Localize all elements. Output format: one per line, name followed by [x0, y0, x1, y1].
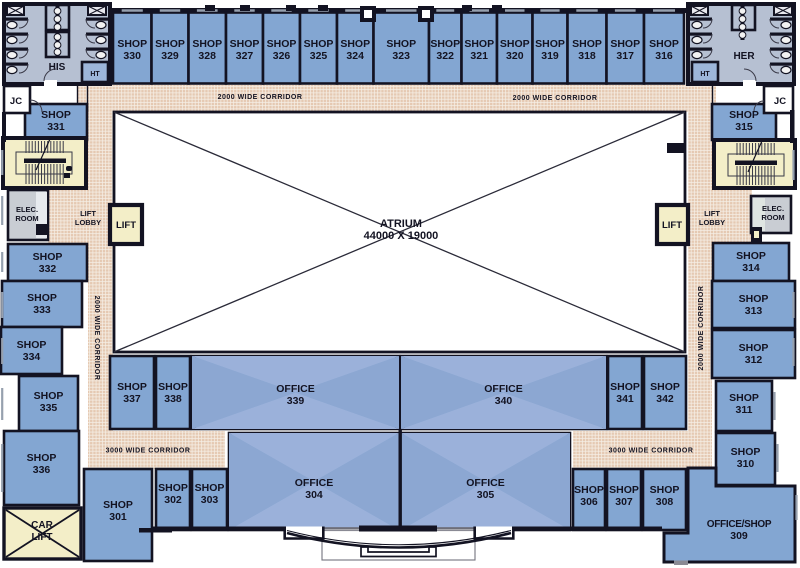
svg-text:SHOP: SHOP	[158, 482, 188, 494]
svg-text:OFFICE: OFFICE	[276, 383, 315, 395]
svg-text:320: 320	[506, 50, 524, 62]
svg-text:336: 336	[33, 464, 51, 476]
svg-text:311: 311	[736, 404, 753, 416]
svg-text:313: 313	[745, 305, 763, 317]
svg-text:LOBBY: LOBBY	[75, 218, 101, 227]
svg-text:326: 326	[273, 50, 291, 62]
svg-text:309: 309	[730, 530, 748, 542]
svg-text:SHOP: SHOP	[192, 38, 222, 50]
svg-text:337: 337	[123, 393, 141, 405]
svg-text:SHOP: SHOP	[340, 38, 370, 50]
svg-text:342: 342	[656, 393, 674, 405]
svg-text:SHOP: SHOP	[535, 38, 565, 50]
svg-text:SHOP: SHOP	[17, 339, 47, 351]
svg-text:ELEC.: ELEC.	[16, 205, 38, 214]
svg-text:330: 330	[123, 50, 141, 62]
svg-text:HER: HER	[733, 51, 755, 62]
svg-text:335: 335	[40, 402, 58, 414]
svg-text:324: 324	[346, 50, 364, 62]
svg-text:SHOP: SHOP	[27, 292, 57, 304]
svg-text:SHOP: SHOP	[34, 390, 64, 402]
svg-text:3000 WIDE CORRIDOR: 3000 WIDE CORRIDOR	[609, 448, 694, 455]
svg-text:LIFT: LIFT	[116, 220, 136, 231]
svg-text:LIFT: LIFT	[80, 209, 96, 218]
svg-text:SHOP: SHOP	[464, 38, 494, 50]
svg-text:307: 307	[615, 496, 633, 508]
svg-text:303: 303	[201, 494, 219, 506]
svg-text:OFFICE/SHOP: OFFICE/SHOP	[707, 519, 772, 530]
svg-text:301: 301	[109, 511, 127, 523]
svg-text:SHOP: SHOP	[739, 342, 769, 354]
svg-text:340: 340	[495, 395, 513, 407]
svg-text:SHOP: SHOP	[195, 482, 225, 494]
svg-text:SHOP: SHOP	[739, 293, 769, 305]
svg-text:SHOP: SHOP	[500, 38, 530, 50]
svg-text:LIFT: LIFT	[704, 209, 720, 218]
svg-text:328: 328	[198, 50, 216, 62]
svg-text:SHOP: SHOP	[117, 38, 147, 50]
svg-text:3000 WIDE CORRIDOR: 3000 WIDE CORRIDOR	[106, 448, 191, 455]
svg-text:2000 WIDE CORRIDOR: 2000 WIDE CORRIDOR	[698, 286, 705, 371]
svg-text:JC: JC	[10, 96, 22, 107]
svg-text:302: 302	[164, 494, 182, 506]
svg-text:327: 327	[236, 50, 254, 62]
svg-text:333: 333	[33, 304, 51, 316]
svg-text:CAR: CAR	[31, 520, 53, 531]
svg-text:SHOP: SHOP	[610, 381, 640, 393]
svg-text:HT: HT	[700, 71, 710, 78]
svg-text:HT: HT	[90, 71, 100, 78]
svg-text:SHOP: SHOP	[117, 381, 147, 393]
svg-text:2000 WIDE CORRIDOR: 2000 WIDE CORRIDOR	[513, 95, 598, 102]
svg-text:318: 318	[578, 50, 596, 62]
svg-text:SHOP: SHOP	[729, 392, 759, 404]
svg-text:ROOM: ROOM	[15, 214, 38, 223]
svg-text:317: 317	[616, 50, 634, 62]
svg-text:321: 321	[470, 50, 488, 62]
svg-text:329: 329	[161, 50, 179, 62]
svg-text:2000 WIDE CORRIDOR: 2000 WIDE CORRIDOR	[218, 94, 303, 101]
svg-text:SHOP: SHOP	[386, 38, 416, 50]
svg-text:HIS: HIS	[49, 62, 66, 73]
svg-text:316: 316	[655, 50, 673, 62]
svg-text:ELEC.: ELEC.	[762, 204, 784, 213]
svg-text:305: 305	[477, 489, 495, 501]
svg-text:44000 X 19000: 44000 X 19000	[364, 230, 439, 242]
svg-text:SHOP: SHOP	[230, 38, 260, 50]
svg-text:LIFT: LIFT	[662, 220, 682, 231]
svg-text:325: 325	[310, 50, 328, 62]
svg-text:SHOP: SHOP	[574, 484, 604, 496]
svg-text:SHOP: SHOP	[158, 381, 188, 393]
svg-text:310: 310	[737, 458, 755, 470]
svg-text:338: 338	[164, 393, 182, 405]
svg-text:334: 334	[23, 351, 41, 363]
svg-text:LIFT: LIFT	[31, 532, 52, 543]
svg-text:SHOP: SHOP	[304, 38, 334, 50]
svg-text:ROOM: ROOM	[761, 213, 784, 222]
svg-text:304: 304	[305, 489, 323, 501]
svg-text:2000 WIDE CORRIDOR: 2000 WIDE CORRIDOR	[93, 296, 100, 381]
svg-text:OFFICE: OFFICE	[484, 383, 523, 395]
svg-text:319: 319	[541, 50, 559, 62]
svg-text:SHOP: SHOP	[649, 38, 679, 50]
svg-text:SHOP: SHOP	[103, 499, 133, 511]
svg-text:341: 341	[616, 393, 634, 405]
svg-text:308: 308	[656, 496, 674, 508]
svg-text:SHOP: SHOP	[572, 38, 602, 50]
svg-text:315: 315	[735, 121, 753, 133]
svg-text:OFFICE: OFFICE	[295, 477, 334, 489]
svg-text:SHOP: SHOP	[731, 446, 761, 458]
svg-text:306: 306	[580, 496, 598, 508]
svg-text:SHOP: SHOP	[610, 38, 640, 50]
svg-text:SHOP: SHOP	[33, 251, 63, 263]
svg-text:SHOP: SHOP	[609, 484, 639, 496]
svg-text:323: 323	[392, 50, 410, 62]
svg-text:SHOP: SHOP	[267, 38, 297, 50]
svg-text:OFFICE: OFFICE	[466, 477, 505, 489]
svg-text:331: 331	[47, 121, 65, 133]
svg-text:314: 314	[742, 262, 760, 274]
svg-text:SHOP: SHOP	[41, 109, 71, 121]
svg-text:332: 332	[39, 263, 57, 275]
svg-text:ATRIUM: ATRIUM	[380, 218, 422, 230]
svg-text:339: 339	[287, 395, 305, 407]
svg-text:SHOP: SHOP	[27, 452, 57, 464]
svg-text:SHOP: SHOP	[650, 484, 680, 496]
svg-text:322: 322	[436, 50, 454, 62]
svg-text:LOBBY: LOBBY	[699, 218, 725, 227]
svg-text:SHOP: SHOP	[650, 381, 680, 393]
svg-text:SHOP: SHOP	[430, 38, 460, 50]
svg-text:312: 312	[745, 354, 763, 366]
svg-text:SHOP: SHOP	[155, 38, 185, 50]
svg-text:SHOP: SHOP	[736, 250, 766, 262]
svg-text:JC: JC	[774, 96, 786, 107]
